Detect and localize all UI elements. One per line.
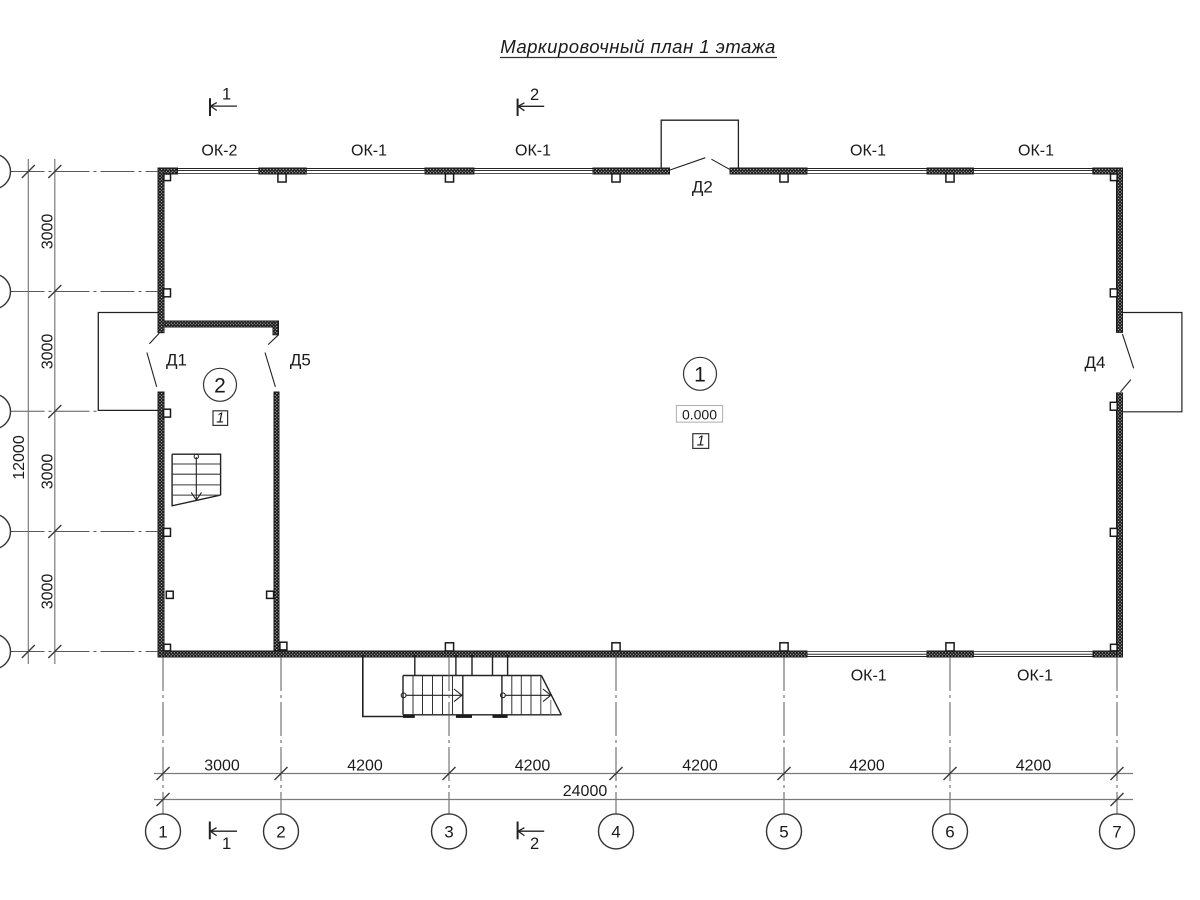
svg-text:3000: 3000 (40, 334, 57, 370)
svg-text:4200: 4200 (515, 758, 551, 775)
svg-text:2: 2 (530, 835, 539, 853)
svg-text:1: 1 (694, 363, 706, 386)
svg-text:3000: 3000 (40, 454, 57, 490)
svg-text:4200: 4200 (347, 758, 383, 775)
svg-text:1: 1 (222, 835, 231, 853)
svg-text:0.000: 0.000 (682, 406, 717, 422)
svg-text:Маркировочный план 1 этажа: Маркировочный план 1 этажа (500, 36, 776, 57)
svg-text:3000: 3000 (204, 758, 240, 775)
svg-text:5: 5 (779, 822, 788, 841)
svg-text:1: 1 (697, 434, 705, 450)
svg-text:24000: 24000 (563, 783, 608, 800)
svg-text:6: 6 (945, 822, 954, 841)
svg-text:1: 1 (222, 85, 231, 103)
svg-text:3000: 3000 (40, 214, 57, 250)
svg-text:2: 2 (214, 374, 226, 397)
svg-text:ОК-1: ОК-1 (1017, 668, 1053, 685)
svg-text:4200: 4200 (1016, 758, 1052, 775)
svg-text:ОК-2: ОК-2 (201, 143, 237, 160)
svg-text:4200: 4200 (682, 758, 718, 775)
svg-text:4200: 4200 (849, 758, 885, 775)
svg-text:12000: 12000 (11, 435, 28, 480)
svg-text:Д4: Д4 (1085, 353, 1106, 372)
svg-text:2: 2 (276, 822, 285, 841)
svg-text:1: 1 (216, 411, 224, 427)
svg-text:7: 7 (1112, 822, 1121, 841)
svg-text:ОК-1: ОК-1 (1018, 143, 1054, 160)
svg-text:ОК-1: ОК-1 (351, 143, 387, 160)
svg-text:4: 4 (611, 822, 620, 841)
svg-text:3: 3 (444, 822, 453, 841)
svg-text:1: 1 (158, 822, 167, 841)
svg-text:ОК-1: ОК-1 (850, 143, 886, 160)
svg-text:Д1: Д1 (166, 351, 187, 370)
svg-text:Д2: Д2 (692, 177, 713, 196)
svg-text:Д5: Д5 (290, 351, 311, 370)
svg-text:ОК-1: ОК-1 (515, 143, 551, 160)
svg-text:ОК-1: ОК-1 (851, 668, 887, 685)
svg-text:2: 2 (530, 86, 539, 104)
svg-text:3000: 3000 (40, 574, 57, 610)
